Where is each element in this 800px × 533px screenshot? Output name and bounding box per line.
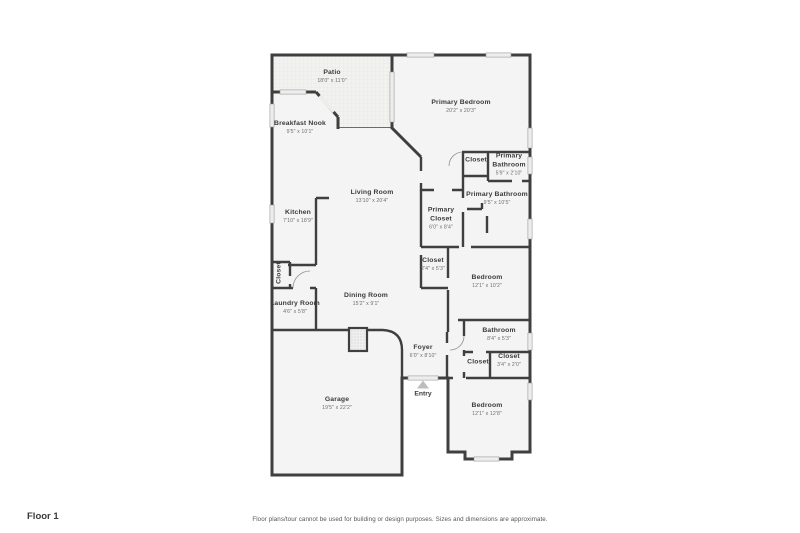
entry-door xyxy=(408,376,438,380)
floorplan-svg xyxy=(0,0,800,533)
fireplace xyxy=(349,328,367,351)
floorplan-page: Patio18'0" x 11'0"Primary Bedroom20'2" x… xyxy=(0,0,800,533)
entry-arrow-icon xyxy=(417,381,429,389)
entry-label: Entry xyxy=(414,391,431,398)
disclaimer-text: Floor plans/tour cannot be used for buil… xyxy=(0,516,800,523)
